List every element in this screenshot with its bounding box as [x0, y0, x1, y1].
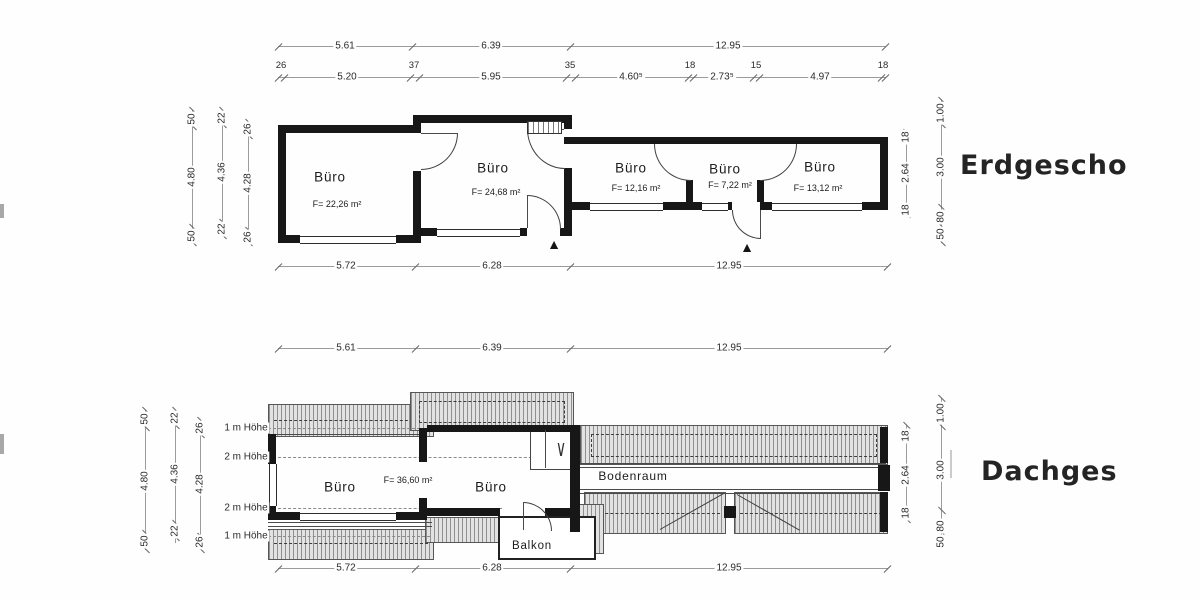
dim-label: 12.95 [713, 41, 742, 52]
dim-label: 50 [140, 533, 151, 548]
wall [878, 465, 890, 491]
dim-label: 80 [936, 518, 947, 533]
dim-label: 4.36 [170, 462, 181, 485]
door-arc [654, 144, 691, 181]
dim-label: 35 [563, 61, 578, 71]
scan-mark [0, 434, 4, 454]
height-label: 2 m Höhe [222, 452, 269, 463]
door-leaf [527, 195, 528, 228]
dim-tick [275, 263, 283, 271]
scan-mark [0, 204, 4, 218]
dim-label: 22 [217, 221, 228, 236]
door-arc [760, 144, 797, 181]
door-arc [527, 129, 565, 169]
roof-hatch [734, 492, 888, 534]
wall [724, 506, 736, 518]
dim-label: 50 [936, 226, 947, 241]
area-label: F= 12,16 m² [612, 183, 661, 193]
dim-label: 4.28 [243, 171, 254, 194]
dim-tick [412, 345, 420, 353]
dim-label: 50 [936, 534, 947, 549]
dim-tick [567, 565, 575, 573]
dim-label: 18 [901, 428, 912, 443]
door-leaf [760, 210, 761, 238]
room-label: Bodenraum [598, 469, 667, 483]
roof-hatch [425, 517, 500, 543]
dim-line-attic-top [278, 348, 888, 349]
dim-label: 22 [170, 410, 181, 425]
door-arc [523, 502, 552, 531]
dim-label: 15 [749, 61, 764, 71]
wall [572, 202, 590, 210]
dim-label: 4.80 [140, 469, 151, 492]
wall [278, 125, 286, 243]
dim-label: 5.61 [334, 343, 357, 354]
dim-label: 12.95 [714, 563, 743, 574]
dim-tick [275, 43, 283, 51]
entrance-marker-icon: ▲ [740, 240, 754, 254]
window [590, 203, 663, 211]
wall [413, 228, 437, 236]
area-label: F= 36,60 m² [384, 475, 433, 485]
dim-tick [882, 43, 890, 51]
dim-tick [567, 345, 575, 353]
dim-label: 26 [195, 534, 206, 549]
wall [278, 125, 420, 133]
dim-label: 3.00 [936, 155, 947, 178]
door-arc [732, 210, 761, 239]
dim-label: 18 [901, 505, 912, 520]
dim-tick [884, 565, 892, 573]
dim-tick [938, 507, 946, 515]
dim-label: 2.73⁵ [708, 72, 736, 83]
dim-tick [275, 565, 283, 573]
roof-dash-line [274, 420, 428, 421]
room-label: Büro [475, 480, 507, 495]
dim-label: 80 [936, 209, 947, 224]
window [300, 236, 396, 244]
dim-label: 22 [217, 110, 228, 125]
dim-label: 4.60⁵ [617, 72, 645, 83]
wall [880, 137, 888, 210]
door-arc [527, 195, 561, 229]
dim-label: 5.61 [333, 41, 356, 52]
window [437, 229, 520, 237]
dim-label: 6.28 [480, 261, 503, 272]
area-label: F= 7,22 m² [708, 180, 752, 190]
dim-label: 5.95 [479, 72, 502, 83]
dim-label: 5.72 [334, 563, 357, 574]
dim-label: 5.72 [334, 261, 357, 272]
floor-title-attic: Dachges [981, 456, 1118, 487]
dim-label: 2.64 [901, 463, 912, 486]
stair-divider [545, 430, 546, 468]
door-arc [421, 133, 458, 170]
dim-line-attic-bottom [278, 568, 888, 569]
dim-label: 6.39 [480, 343, 503, 354]
wall [760, 202, 772, 210]
dim-tick [884, 263, 892, 271]
wall [862, 202, 888, 210]
dim-label: 50 [187, 111, 198, 126]
roof-dash-box [591, 434, 877, 457]
dim-label: 3.00 [936, 458, 947, 481]
wall [564, 115, 572, 129]
dim-line-ground-top2 [278, 77, 886, 78]
eave-line [268, 526, 432, 527]
entrance-marker-icon: ▲ [547, 237, 561, 251]
corridor-line [580, 493, 886, 494]
dim-tick [884, 345, 892, 353]
dim-tick [572, 74, 580, 82]
dim-tick [567, 263, 575, 271]
wall [880, 427, 888, 463]
window [269, 464, 277, 506]
dim-tick [416, 74, 424, 82]
dim-label: 26 [195, 420, 206, 435]
dim-tick [563, 74, 571, 82]
wall [757, 180, 764, 202]
area-label: F= 13,12 m² [794, 183, 843, 193]
scan-mark [950, 450, 952, 478]
roof-hatch [268, 529, 434, 560]
dim-tick [275, 345, 283, 353]
dim-label: 6.28 [480, 563, 503, 574]
dim-label: 50 [187, 228, 198, 243]
corridor-line [580, 467, 886, 468]
wall [663, 202, 702, 210]
dim-label: 26 [243, 229, 254, 244]
dim-label: 12.95 [714, 343, 743, 354]
wall [278, 235, 300, 243]
dim-label: 12.95 [714, 261, 743, 272]
dim-label: 26 [274, 61, 289, 71]
room-label: Büro [615, 161, 647, 176]
roof-dash-box [419, 401, 565, 423]
stair-direction-icon: ∨ [556, 435, 566, 462]
floor-title-ground: Erdgescho [960, 150, 1128, 181]
dim-label: 5.20 [335, 72, 358, 83]
dim-label: 18 [901, 202, 912, 217]
wall [686, 180, 693, 202]
dim-line-ground-top1 [278, 46, 886, 47]
door-leaf [523, 502, 524, 530]
height-line [268, 428, 430, 429]
dim-label: 2.64 [901, 161, 912, 184]
wall [419, 428, 427, 462]
window [300, 513, 396, 521]
dim-label: 37 [407, 61, 422, 71]
corridor-line [580, 489, 886, 490]
dim-tick [409, 43, 417, 51]
dim-label: 4.28 [195, 472, 206, 495]
room-label: Büro [709, 162, 741, 177]
dim-label: 1.00 [936, 401, 947, 424]
dim-label: 1.00 [936, 101, 947, 124]
roof-hatch [584, 492, 726, 534]
window [772, 203, 862, 211]
dim-label: 4.80 [187, 165, 198, 188]
wall [396, 512, 425, 520]
dim-tick [567, 43, 575, 51]
dim-label: 18 [876, 61, 891, 71]
dim-tick [412, 565, 420, 573]
dim-label: 4.97 [808, 72, 831, 83]
height-line [268, 536, 430, 537]
wall [545, 508, 572, 516]
height-label: 1 m Höhe [222, 531, 269, 542]
wall [425, 508, 500, 516]
dim-label: 18 [683, 61, 698, 71]
wall [880, 492, 888, 532]
area-label: F= 22,26 m² [313, 199, 362, 209]
roof-hatch [580, 425, 888, 465]
dim-label: 22 [170, 523, 181, 538]
dim-line-ground-bottom [278, 266, 888, 267]
dim-tick [412, 263, 420, 271]
door-leaf [421, 133, 457, 134]
wall [520, 228, 527, 236]
stairs [530, 430, 574, 470]
corridor-line [580, 463, 886, 464]
room-label: Büro [314, 170, 346, 185]
dim-label: 26 [243, 121, 254, 136]
height-label: 1 m Höhe [222, 423, 269, 434]
room-label: Büro [324, 480, 356, 495]
room-label: Balkon [512, 540, 552, 552]
radiator [527, 121, 562, 134]
eave-line [276, 434, 426, 435]
wall [728, 202, 732, 210]
dim-label: 6.39 [479, 41, 502, 52]
wall [276, 512, 300, 520]
roof-dash-line [274, 543, 428, 544]
room-label: Büro [804, 160, 836, 175]
dim-label: 18 [901, 129, 912, 144]
wall [564, 168, 572, 236]
area-label: F= 24,68 m² [472, 187, 521, 197]
dim-label: 50 [140, 411, 151, 426]
wall [427, 425, 572, 432]
height-label: 2 m Höhe [222, 503, 269, 514]
room-label: Büro [477, 161, 509, 176]
dim-label: 4.36 [217, 160, 228, 183]
eave-line [268, 522, 432, 523]
roof-dash-line [740, 513, 882, 514]
dim-tick [407, 74, 415, 82]
window [702, 203, 728, 211]
wall [560, 228, 572, 236]
roof-dash-line [590, 513, 720, 514]
wall [564, 137, 888, 144]
